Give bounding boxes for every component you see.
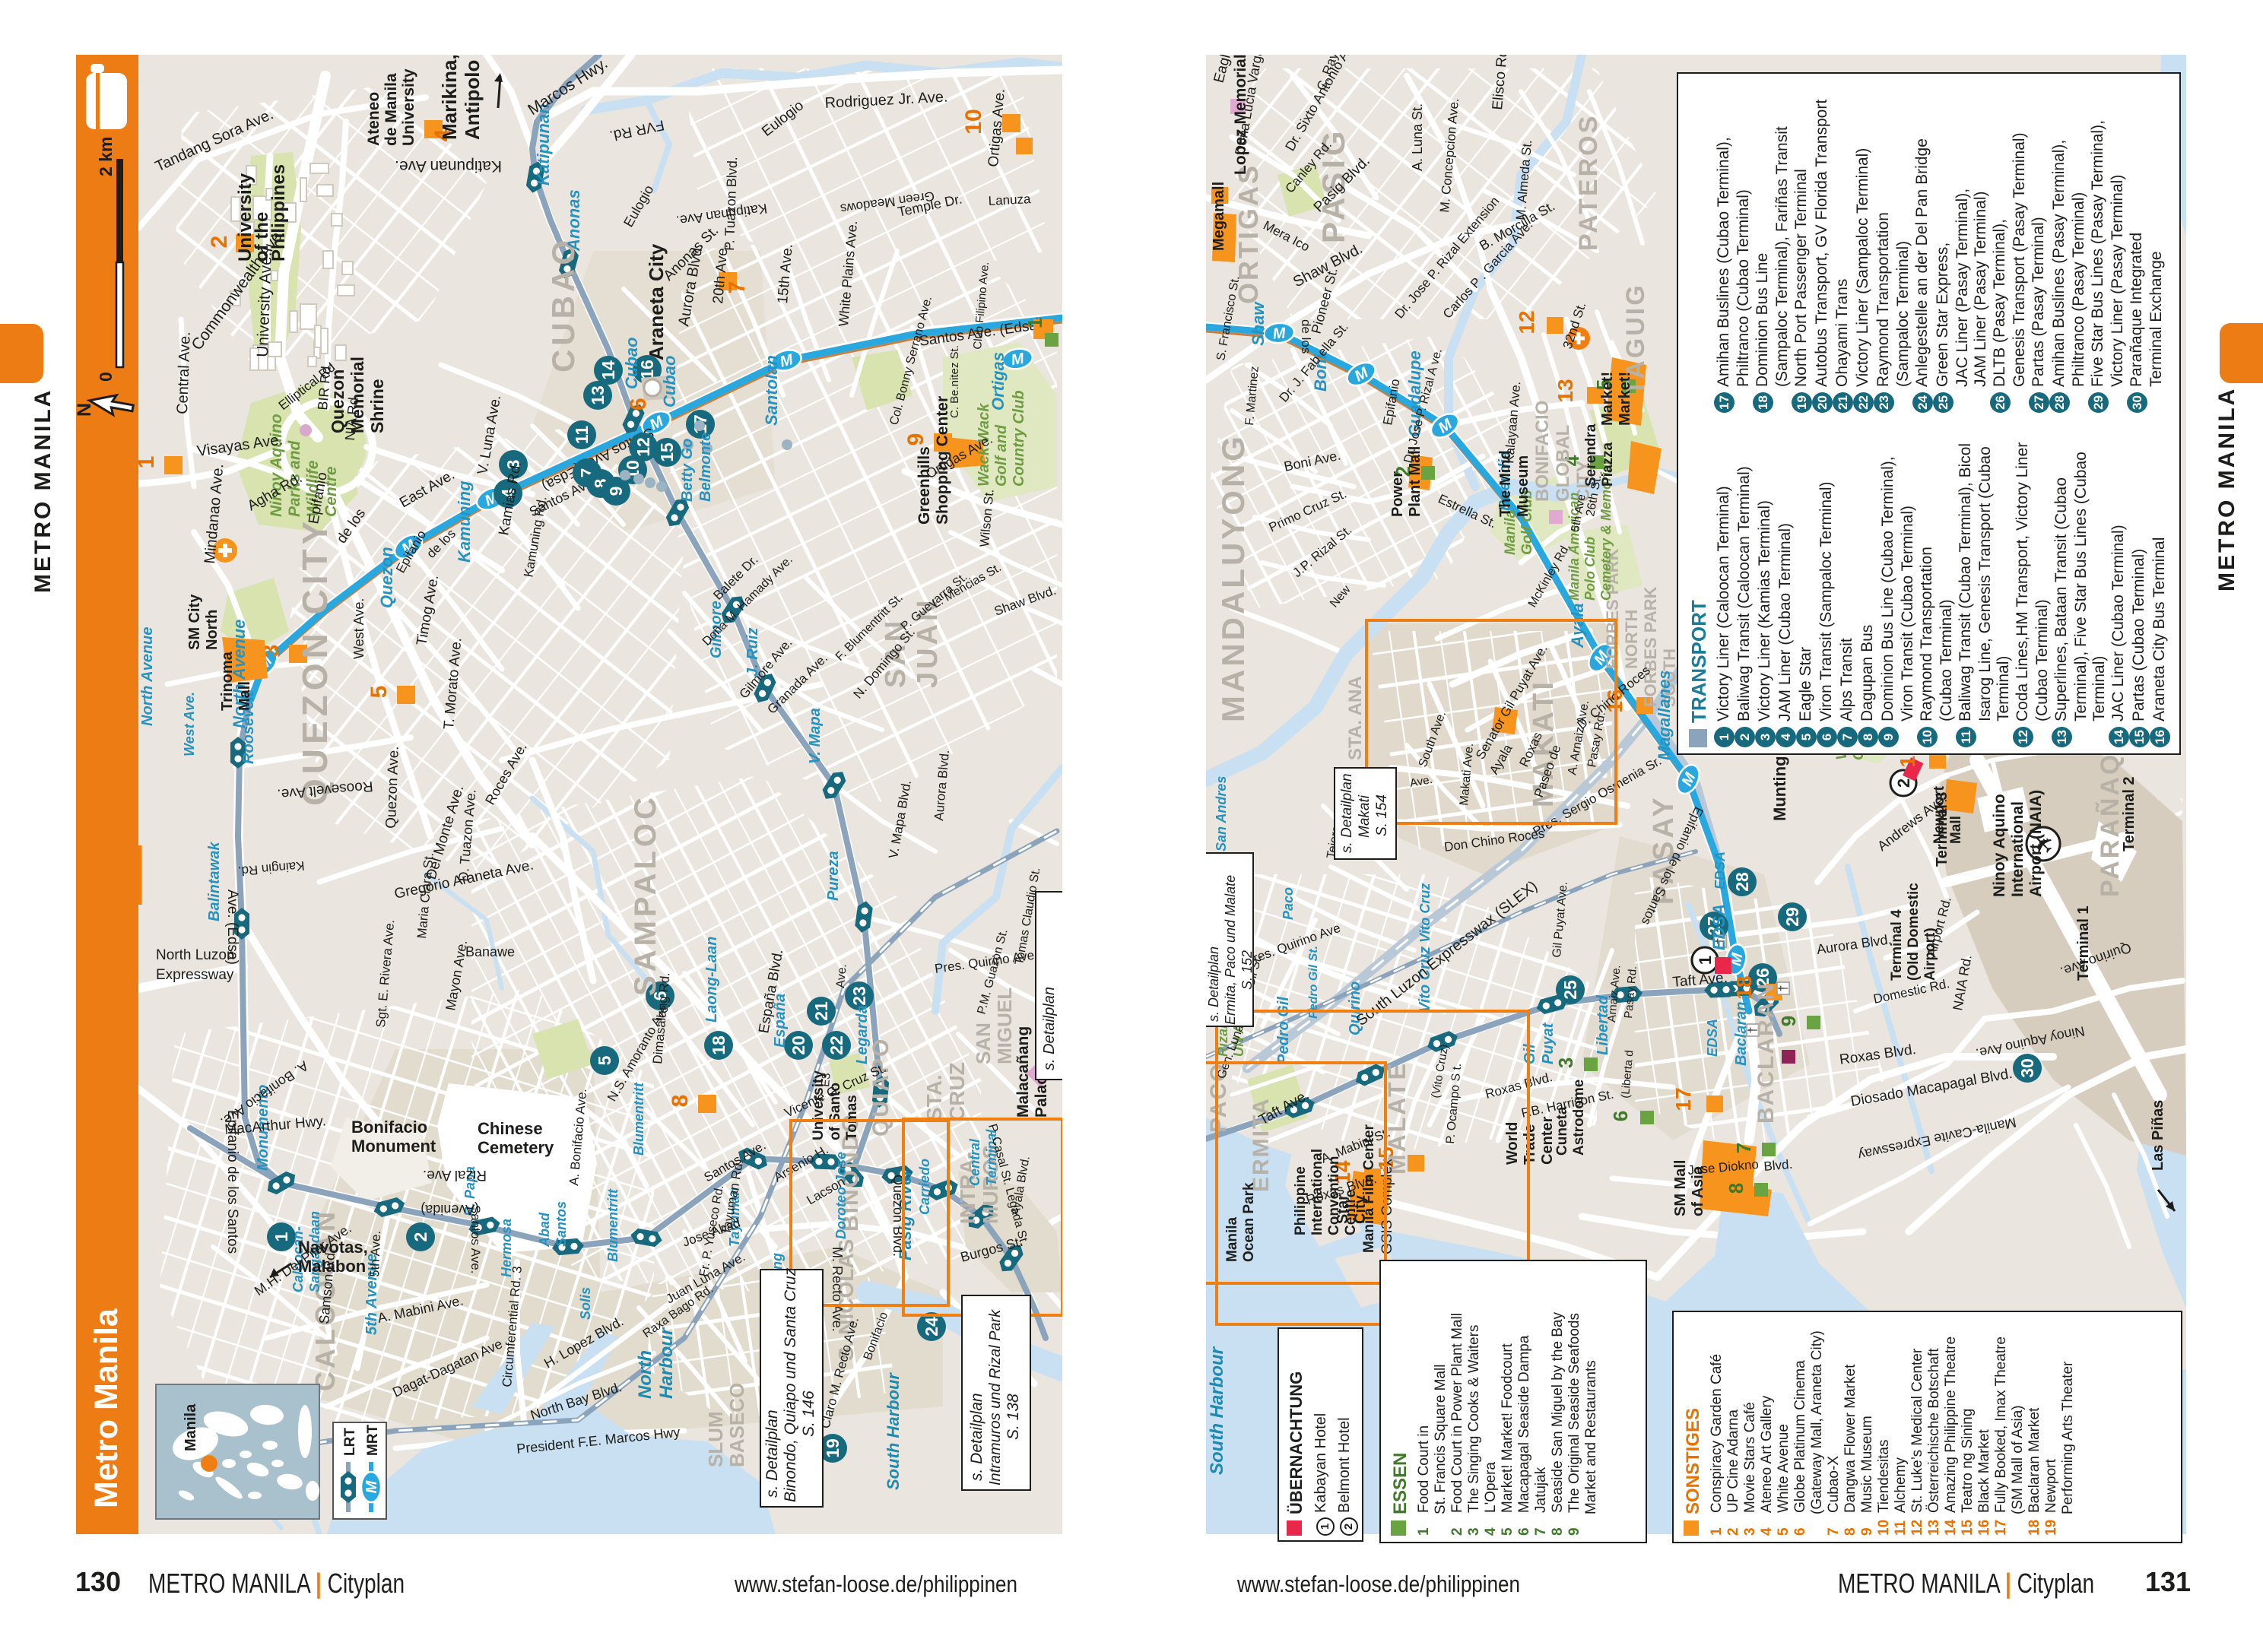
svg-text:SM City: SM City: [186, 594, 203, 650]
svg-text:West Ave.: West Ave.: [351, 598, 367, 659]
svg-text:Intramuros und Rizal Park: Intramuros und Rizal Park: [987, 1309, 1004, 1486]
svg-text:†: †: [1777, 985, 1790, 992]
svg-text:Araneta City: Araneta City: [645, 243, 668, 360]
svg-text:7: 7: [1732, 1143, 1755, 1153]
svg-text:Magallanes: Magallanes: [1655, 670, 1674, 760]
svg-text:Manila: Manila: [1224, 1216, 1240, 1262]
svg-text:Quezon Ave.: Quezon Ave.: [383, 746, 402, 829]
svg-text:STA.: STA.: [922, 1074, 946, 1121]
svg-text:de Manila: de Manila: [382, 73, 400, 146]
svg-text:EDSA: EDSA: [1709, 904, 1728, 950]
svg-text:18: 18: [1732, 975, 1756, 999]
svg-text:M: M: [363, 1479, 380, 1493]
svg-text:Makati: Makati: [1357, 794, 1373, 838]
svg-text:22: 22: [827, 1035, 846, 1055]
svg-text:Quezon: Quezon: [377, 547, 396, 608]
svg-text:8: 8: [668, 1095, 693, 1108]
svg-text:9: 9: [606, 487, 626, 496]
svg-text:BACLARAN: BACLARAN: [1754, 982, 1779, 1124]
svg-text:2: 2: [1894, 778, 1913, 788]
svg-text:MANDALUYONG: MANDALUYONG: [1215, 433, 1251, 722]
svg-text:University: University: [400, 68, 417, 146]
svg-text:International: International: [2009, 801, 2027, 897]
svg-text:11: 11: [572, 426, 592, 445]
svg-text:25: 25: [1560, 980, 1580, 1000]
svg-text:LRT: LRT: [342, 1428, 358, 1456]
svg-text:S. 154: S. 154: [1374, 794, 1390, 836]
svg-text:Astrodome: Astrodome: [1571, 1080, 1587, 1156]
svg-text:Quirino: Quirino: [1347, 981, 1363, 1035]
svg-text:7: 7: [725, 281, 750, 294]
svg-text:Kamuning: Kamuning: [455, 480, 474, 563]
svg-text:S. 138: S. 138: [1005, 1394, 1022, 1440]
svg-text:Blumentritt: Blumentritt: [631, 1082, 646, 1156]
svg-text:North: North: [204, 610, 221, 650]
svg-text:Ninoy Aquino: Ninoy Aquino: [1991, 794, 2008, 897]
svg-text:Legarda: Legarda: [854, 1005, 871, 1064]
svg-text:Balintawak: Balintawak: [206, 842, 223, 921]
svg-text:12: 12: [1515, 310, 1538, 334]
svg-text:EDSA: EDSA: [1712, 851, 1728, 889]
svg-text:10: 10: [961, 109, 986, 134]
svg-text:6: 6: [1609, 1111, 1632, 1121]
svg-text:Paco: Paco: [1281, 887, 1296, 920]
svg-text:Pureza: Pureza: [825, 851, 842, 901]
svg-text:30: 30: [2017, 1058, 2037, 1078]
svg-text:SM: SM: [1206, 228, 1210, 251]
svg-text:24: 24: [922, 1317, 941, 1337]
svg-text:Ayala: Ayala: [1568, 603, 1587, 648]
svg-text:Binondo, Quiapo und Santa Cruz: Binondo, Quiapo und Santa Cruz: [782, 1267, 799, 1502]
svg-text:Manila: Manila: [182, 1403, 199, 1451]
svg-text:Pedro Gil St.: Pedro Gil St.: [1307, 946, 1320, 1019]
svg-text:5: 5: [595, 1055, 614, 1065]
svg-text:Market!: Market!: [1599, 372, 1616, 426]
svg-text:21: 21: [811, 1001, 831, 1021]
svg-text:Chinese: Chinese: [478, 1119, 543, 1138]
svg-text:Megamall: Megamall: [1211, 182, 1227, 251]
svg-text:BONIFACIO: BONIFACIO: [1532, 401, 1553, 502]
svg-text:Bonifacio: Bonifacio: [351, 1118, 427, 1137]
svg-text:28: 28: [1732, 872, 1752, 892]
svg-text:Blvd.: Blvd.: [1763, 1157, 1793, 1174]
svg-text:S. 146: S. 146: [800, 1390, 817, 1437]
svg-text:Vito Cruz: Vito Cruz: [1417, 883, 1433, 943]
svg-text:Ermita, Paco und Malate: Ermita, Paco und Malate: [1223, 875, 1238, 1025]
svg-text:1: 1: [1024, 318, 1046, 328]
svg-text:15: 15: [657, 442, 677, 462]
svg-text:Doroteo Jose: Doroteo Jose: [833, 1152, 849, 1239]
svg-text:s. Detailplan: s. Detailplan: [763, 1409, 781, 1498]
svg-text:Mall: Mall: [236, 681, 253, 711]
svg-text:North Luzon: North Luzon: [156, 947, 235, 963]
svg-text:Polo Club: Polo Club: [1582, 537, 1598, 601]
svg-text:Laong-Laan: Laong-Laan: [703, 937, 720, 1023]
svg-text:S. 152: S. 152: [1239, 950, 1255, 990]
svg-text:1: 1: [1696, 956, 1715, 965]
svg-text:North: North: [635, 1350, 655, 1399]
svg-text:Cemetery: Cemetery: [478, 1138, 554, 1157]
svg-text:Puyat: Puyat: [1540, 1022, 1557, 1064]
svg-text:Harbour: Harbour: [656, 1327, 677, 1399]
svg-text:South Harbour: South Harbour: [884, 1372, 903, 1490]
svg-text:Tomas: Tomas: [844, 1095, 860, 1140]
svg-text:Expressway: Expressway: [156, 967, 234, 983]
svg-text:Center: Center: [1539, 1116, 1556, 1165]
svg-text:19: 19: [823, 1438, 843, 1458]
svg-text:Power: Power: [1389, 471, 1406, 517]
svg-text:Las Piñas: Las Piñas: [2150, 1100, 2166, 1171]
svg-text:Santos: Santos: [554, 1201, 569, 1247]
svg-text:9: 9: [1777, 1016, 1800, 1026]
svg-text:University Ave.: University Ave.: [254, 252, 275, 357]
svg-text:Belmonte: Belmonte: [697, 433, 714, 502]
svg-text:QUEZON CITY: QUEZON CITY: [295, 517, 335, 806]
svg-text:Greenhills: Greenhills: [916, 446, 933, 525]
svg-text:Santolan: Santolan: [762, 355, 781, 426]
svg-text:Blumentritt: Blumentritt: [605, 1188, 620, 1262]
svg-text:Baclaran: Baclaran: [1733, 1002, 1750, 1067]
svg-text:20: 20: [789, 1035, 808, 1055]
svg-text:City: City: [1352, 1194, 1369, 1224]
svg-text:13: 13: [1554, 379, 1577, 402]
svg-text:13: 13: [588, 385, 608, 405]
svg-text:Malacañang: Malacañang: [1014, 1026, 1032, 1118]
svg-text:1: 1: [271, 1232, 291, 1241]
svg-text:STA. ANA: STA. ANA: [1345, 676, 1366, 760]
svg-text:12: 12: [633, 437, 653, 457]
svg-text:West Ave.: West Ave.: [182, 692, 197, 756]
svg-text:MRT: MRT: [365, 1424, 381, 1456]
svg-text:8: 8: [1725, 1183, 1747, 1194]
svg-text:Cubao: Cubao: [660, 356, 679, 407]
svg-text:MALATE: MALATE: [1383, 1061, 1411, 1175]
svg-text:MIGUEL: MIGUEL: [993, 988, 1016, 1064]
svg-text:SLUM: SLUM: [704, 1411, 727, 1467]
svg-text:Central: Central: [967, 1138, 982, 1186]
svg-text:A. Luna St.: A. Luna St.: [1410, 103, 1425, 171]
svg-text:Country Club: Country Club: [1011, 390, 1027, 487]
svg-text:Airport (NAIA): Airport (NAIA): [2027, 790, 2045, 897]
svg-text:Shaw: Shaw: [1249, 301, 1268, 346]
svg-text:World: World: [1504, 1122, 1521, 1165]
svg-text:M. Recto Ave.: M. Recto Ave.: [830, 1247, 845, 1332]
svg-text:EDSA: EDSA: [1705, 1019, 1720, 1057]
svg-text:PATEROS: PATEROS: [1574, 114, 1603, 251]
svg-text:2: 2: [207, 236, 232, 249]
svg-text:23: 23: [849, 986, 869, 1006]
svg-text:Trinoma: Trinoma: [219, 651, 236, 711]
svg-text:Katipunan Ave.: Katipunan Ave.: [395, 157, 502, 175]
svg-text:Solis: Solis: [578, 1287, 593, 1320]
svg-text:M: M: [1272, 325, 1287, 342]
svg-text:SAN: SAN: [972, 1023, 995, 1064]
svg-text:South Harbour: South Harbour: [1207, 1346, 1227, 1475]
svg-text:5th Ave.: 5th Ave.: [367, 1230, 383, 1277]
svg-text:San Andres: San Andres: [1214, 776, 1229, 851]
svg-text:Ocean Park: Ocean Park: [1241, 1182, 1257, 1262]
svg-text:Anonas: Anonas: [564, 189, 583, 252]
svg-text:Banawe: Banawe: [465, 944, 515, 959]
svg-text:Pedro Gil: Pedro Gil: [1275, 997, 1292, 1064]
svg-text:de los: de los: [1299, 319, 1313, 354]
svg-text:N: N: [74, 403, 95, 417]
svg-text:Monument: Monument: [351, 1137, 436, 1156]
svg-text:Santos Ave.: Santos Ave.: [468, 1205, 483, 1273]
svg-text:Shrine: Shrine: [367, 379, 387, 433]
svg-text:9: 9: [903, 433, 928, 446]
svg-text:Rizal Ave.: Rizal Ave.: [423, 1167, 487, 1183]
svg-text:14: 14: [598, 360, 618, 380]
svg-text:North Avenue: North Avenue: [139, 627, 156, 726]
svg-text:Cuneta: Cuneta: [1554, 1106, 1570, 1156]
svg-text:GLOBAL: GLOBAL: [1553, 425, 1573, 502]
svg-text:Ateneo: Ateneo: [365, 92, 382, 146]
svg-text:Marikina,: Marikina,: [438, 55, 461, 140]
svg-text:Mall: Mall: [1948, 816, 1964, 844]
svg-text:s. Detailplan: s. Detailplan: [1041, 987, 1058, 1070]
svg-text:E3: E3: [819, 1073, 833, 1088]
svg-text:s. Detailplan: s. Detailplan: [1206, 946, 1221, 1022]
svg-text:GSIS Complex: GSIS Complex: [1379, 1159, 1395, 1254]
svg-text:Betty Go: Betty Go: [679, 439, 696, 502]
svg-text:Ave.: Ave.: [834, 963, 849, 988]
svg-text:18: 18: [709, 1035, 728, 1055]
svg-text:3: 3: [1554, 1057, 1577, 1068]
svg-text:Market!: Market!: [1617, 372, 1633, 426]
svg-text:Golf and: Golf and: [993, 424, 1010, 487]
svg-text:Antipolo: Antipolo: [461, 60, 484, 140]
svg-text:Lanuza: Lanuza: [988, 192, 1031, 208]
svg-text:SAMPALOC: SAMPALOC: [629, 794, 662, 996]
svg-text:5: 5: [367, 686, 392, 699]
svg-text:Ortigas: Ortigas: [989, 352, 1008, 411]
svg-text:Cubao: Cubao: [622, 338, 641, 389]
svg-text:CUBAO: CUBAO: [545, 236, 581, 373]
svg-text:2 km: 2 km: [96, 137, 116, 176]
svg-text:(Old Domestic: (Old Domestic: [1906, 883, 1922, 981]
svg-text:C. Be.nitez St.: C. Be.nitez St.: [948, 345, 961, 418]
svg-text:Abad: Abad: [537, 1212, 552, 1248]
svg-text:Carriedo: Carriedo: [917, 1159, 932, 1215]
svg-text:2: 2: [411, 1232, 430, 1242]
svg-text:Museum: Museum: [1515, 455, 1531, 517]
svg-text:Terminal 2: Terminal 2: [2121, 776, 2138, 851]
svg-text:V. Mapa: V. Mapa: [807, 708, 824, 764]
svg-text:NORTH: NORTH: [1622, 610, 1641, 669]
svg-text:29: 29: [1782, 907, 1802, 927]
svg-text:CRUZ: CRUZ: [945, 1062, 969, 1121]
svg-text:0: 0: [96, 372, 116, 382]
svg-text:s. Detailplan: s. Detailplan: [1339, 773, 1355, 853]
svg-text:BASECO: BASECO: [725, 1383, 748, 1467]
svg-text:17: 17: [1671, 1087, 1695, 1111]
svg-text:SM Mall: SM Mall: [1672, 1160, 1689, 1216]
svg-text:s. Detailplan: s. Detailplan: [968, 1393, 985, 1481]
